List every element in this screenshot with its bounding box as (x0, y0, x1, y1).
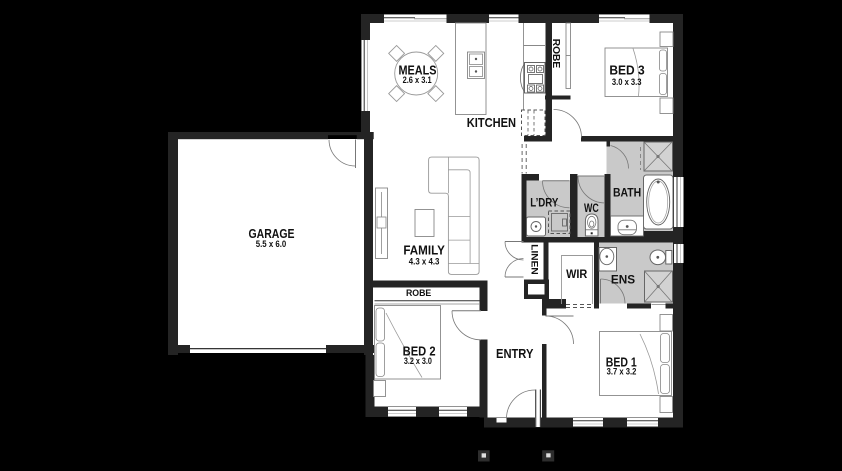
svg-text:ROBE: ROBE (550, 39, 562, 69)
svg-text:LINEN: LINEN (529, 244, 540, 275)
svg-text:BATH: BATH (613, 188, 641, 200)
svg-text:3.0 x 3.3: 3.0 x 3.3 (612, 77, 642, 87)
svg-text:KITCHEN: KITCHEN (467, 115, 516, 130)
svg-text:3.7 x 3.2: 3.7 x 3.2 (607, 367, 637, 377)
svg-text:BED 3: BED 3 (609, 62, 644, 77)
svg-text:5.5 x 6.0: 5.5 x 6.0 (256, 239, 287, 249)
svg-text:4.3 x 4.3: 4.3 x 4.3 (409, 256, 440, 266)
svg-text:WIR: WIR (566, 269, 588, 281)
svg-text:WC: WC (584, 203, 599, 215)
svg-text:ENS: ENS (611, 274, 636, 286)
svg-text:ROBE: ROBE (406, 288, 431, 299)
svg-text:2.6 x 3.1: 2.6 x 3.1 (403, 75, 432, 85)
svg-text:3.2 x 3.0: 3.2 x 3.0 (404, 356, 432, 366)
svg-text:L’DRY: L’DRY (530, 198, 558, 210)
svg-text:ENTRY: ENTRY (496, 346, 534, 361)
